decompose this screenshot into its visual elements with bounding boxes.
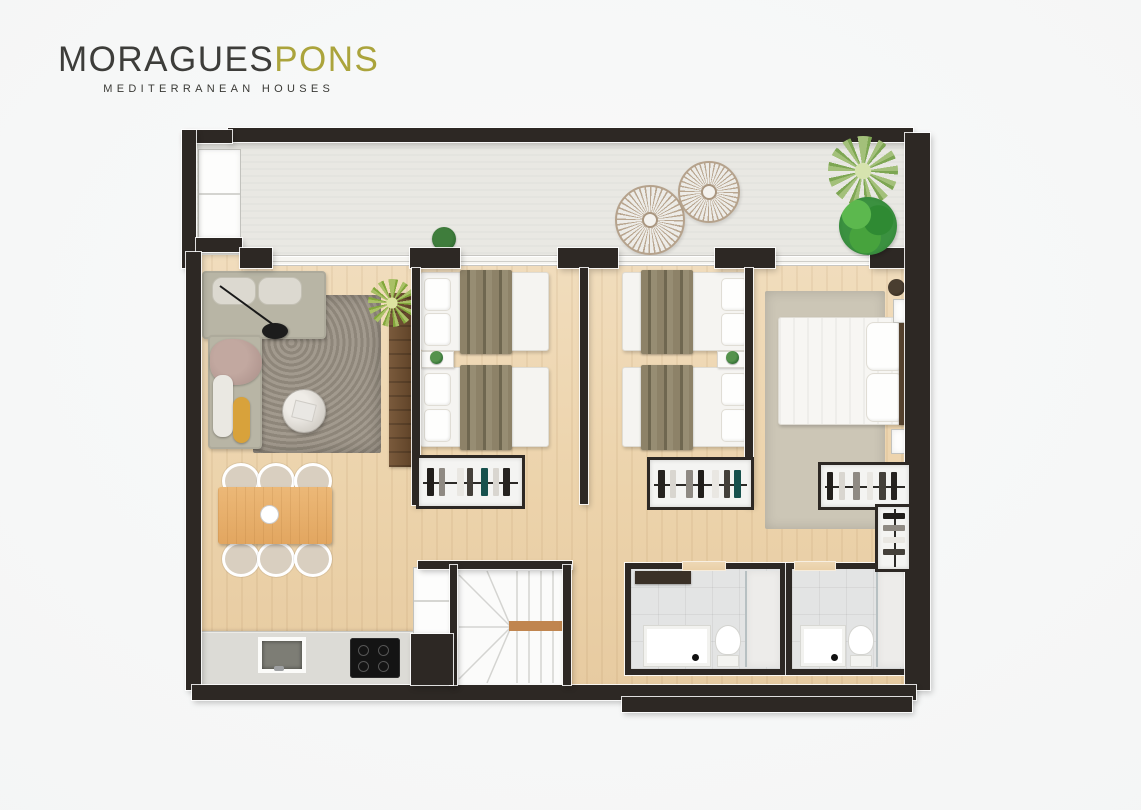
living-terrace-glass-door (272, 255, 410, 266)
bathroom2-vanity (800, 625, 846, 667)
sun-parasol-small (678, 161, 740, 223)
brand-tagline: MEDITERRANEAN HOUSES (58, 83, 379, 95)
wall-bedroom1-bedroom2 (580, 268, 588, 504)
brand-wordmark-primary: MORAGUES (58, 40, 274, 79)
master-wardrobe (818, 462, 912, 510)
coffee-table (282, 389, 326, 433)
bathroom1-faucet (692, 654, 699, 661)
wall-niche-bottom (196, 238, 242, 252)
bedroom1-terrace-glass-door (460, 255, 558, 266)
wall-pier-d (715, 248, 775, 268)
wall-niche-left (182, 130, 196, 268)
brand-logo: MORAGUESPONS MEDITERRANEAN HOUSES (58, 42, 379, 95)
bedroom2-nightstand-plant (726, 351, 739, 364)
bathroom2 (786, 563, 916, 675)
bedroom2-wardrobe (647, 457, 754, 510)
brand-wordmark: MORAGUESPONS (58, 42, 379, 77)
table-plate (260, 505, 279, 524)
sun-parasol-large (615, 185, 685, 255)
terrace-palm-plant (828, 136, 898, 206)
bedroom2-twin-bed-bottom (622, 367, 751, 447)
bathroom1 (625, 563, 786, 675)
bathroom1-vanity (643, 625, 711, 667)
wall-pier-c (558, 248, 618, 268)
dining-chair (257, 541, 295, 577)
bathroom2-toilet (848, 625, 874, 667)
master-double-bed (778, 317, 908, 425)
staircase (457, 569, 563, 685)
bathroom1-toilet (715, 625, 741, 667)
wall-pier-a (240, 248, 272, 268)
wall-bottom-protrusion (622, 697, 912, 712)
bedroom2-terrace-glass-door (618, 255, 715, 266)
kitchen-faucet (274, 666, 284, 671)
bathroom2-door-opening (794, 561, 836, 571)
master-terrace-glass-door (775, 255, 870, 266)
appliance-column (413, 567, 453, 635)
wall-pier-b (410, 248, 460, 268)
master-corner-wardrobe (875, 504, 912, 572)
wall-under-closet (411, 634, 453, 685)
closet-divider (199, 193, 240, 195)
bedroom1-nightstand-plant (430, 351, 443, 364)
wall-left (186, 252, 201, 690)
living-palm-plant (368, 279, 416, 327)
terrace-storage-closet (198, 149, 241, 239)
bedroom2-twin-bed-top (622, 272, 751, 351)
master-nightstand-top (888, 279, 905, 296)
bathroom1-shower (745, 571, 780, 667)
wall-stairs-top (418, 561, 572, 569)
bathroom1-shelf (635, 571, 691, 584)
bedroom1-wardrobe (416, 455, 525, 509)
sofa-yellow-bolster (233, 397, 250, 443)
sofa-pillow (212, 277, 256, 305)
wall-top (228, 128, 913, 142)
terrace-floor (196, 142, 905, 268)
wall-stairs-right (563, 565, 571, 685)
terrace-green-bush (839, 197, 897, 255)
bedroom1-twin-bed-top (420, 272, 549, 351)
bathroom2-faucet (831, 654, 838, 661)
wall-right (905, 133, 930, 690)
floor-plan (182, 127, 930, 713)
dining-chair (222, 541, 260, 577)
kitchen-counter (200, 631, 413, 686)
appliance-divider (414, 600, 452, 602)
bathroom1-door-opening (682, 561, 726, 571)
dining-table (218, 487, 332, 544)
bedroom1-twin-bed-bottom (420, 367, 549, 447)
cooktop (350, 638, 400, 678)
brand-wordmark-accent: PONS (274, 40, 379, 79)
page: { "brand": { "wordmark_primary": "MORAGU… (0, 0, 1141, 810)
floor-lamp-shade (262, 323, 288, 339)
coffee-table-book (291, 400, 317, 423)
sofa-white-bolster (213, 375, 233, 437)
sofa-pillow (258, 277, 302, 305)
dining-chair (294, 541, 332, 577)
